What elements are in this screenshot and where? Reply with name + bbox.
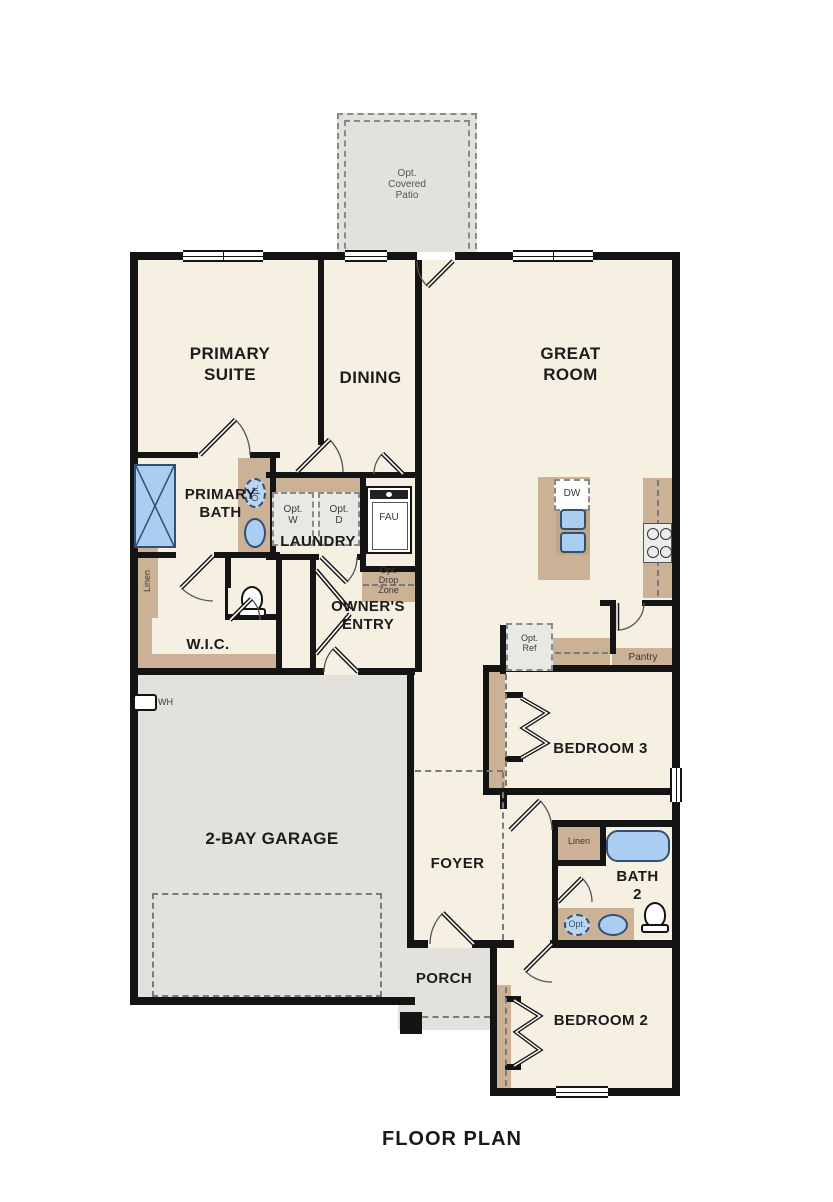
wall-bedroom3-left bbox=[483, 672, 489, 795]
foyer-label: FOYER bbox=[420, 855, 495, 873]
bedroom2-label: BEDROOM 2 bbox=[536, 1012, 666, 1030]
burner-1 bbox=[647, 528, 659, 540]
wall-wic-right bbox=[276, 558, 282, 674]
wall-suite-dining bbox=[318, 258, 324, 445]
wall-closet2-stub-top bbox=[505, 996, 521, 1002]
closet2-rod bbox=[505, 987, 507, 1086]
opening-laundry bbox=[319, 554, 357, 560]
bath2-tub bbox=[606, 830, 670, 862]
porch-step bbox=[400, 1012, 422, 1034]
burner-3 bbox=[647, 546, 659, 558]
great-room-label: GREAT ROOM bbox=[513, 344, 628, 385]
window-primary-suite bbox=[183, 250, 263, 262]
wall-closet2-stub-bottom bbox=[505, 1064, 521, 1070]
primary-suite-label: PRIMARY SUITE bbox=[150, 344, 310, 385]
wall-bedroom3-bottom bbox=[483, 788, 680, 795]
fau-label: FAU bbox=[368, 512, 410, 523]
counter-mid-centerline bbox=[555, 652, 608, 654]
wall-garage-right bbox=[407, 675, 414, 948]
dishwasher-label: DW bbox=[556, 488, 588, 499]
opt-washer-label: Opt. W bbox=[276, 504, 310, 526]
bath2-sink bbox=[598, 914, 628, 936]
window-great-room bbox=[513, 250, 593, 262]
bath2-toilet-base bbox=[641, 924, 669, 933]
laundry-counter bbox=[270, 478, 362, 492]
fau-knob bbox=[386, 492, 392, 497]
laundry-label: LAUNDRY bbox=[272, 533, 364, 551]
bath2-opt-sink-label: Opt. bbox=[564, 919, 590, 929]
plan-title: FLOOR PLAN bbox=[362, 1128, 542, 1151]
garage-label: 2-BAY GARAGE bbox=[192, 829, 352, 850]
burner-4 bbox=[660, 546, 672, 558]
bath2-linen-label: Linen bbox=[558, 836, 600, 846]
opening-front-door bbox=[428, 940, 472, 948]
primary-toilet-base bbox=[238, 608, 266, 617]
foyer-hall-break bbox=[502, 772, 504, 940]
porch-edge bbox=[412, 1016, 490, 1018]
wall-bedroom2-left bbox=[490, 940, 497, 1096]
bath2-label: BATH 2 bbox=[610, 868, 665, 905]
wall-laundry-top bbox=[266, 472, 421, 478]
wall-exterior-right bbox=[672, 252, 680, 1096]
wall-dining-greatroom bbox=[415, 258, 422, 672]
wall-garage-top bbox=[130, 668, 415, 675]
window-bedroom2 bbox=[556, 1086, 608, 1098]
opt-ref-label: Opt. Ref bbox=[508, 633, 551, 653]
closet3-rod bbox=[505, 674, 507, 786]
floor-plan-canvas: Opt. Covered Patio PRIMARY SUITE DINING … bbox=[0, 0, 833, 1202]
window-dining bbox=[345, 250, 387, 262]
opening-bath-wic bbox=[176, 552, 214, 558]
wall-pantry-left bbox=[610, 600, 616, 654]
opening-owners-garage bbox=[324, 668, 358, 675]
wall-linen2-bottom bbox=[552, 860, 606, 866]
fau-body-outline bbox=[372, 502, 408, 550]
garage-door-outline bbox=[152, 893, 382, 997]
range bbox=[643, 523, 672, 563]
opt-dryer-label: Opt. D bbox=[322, 504, 356, 526]
opening-bedroom2-door bbox=[514, 940, 550, 948]
wic-label: W.I.C. bbox=[172, 636, 244, 654]
opening-suite-bath bbox=[198, 452, 250, 458]
island-sink-upper bbox=[560, 509, 586, 530]
pantry-label: Pantry bbox=[618, 652, 668, 663]
bedroom3-label: BEDROOM 3 bbox=[538, 740, 663, 758]
wall-closet3-stub-top bbox=[505, 692, 523, 698]
drop-zone-label: Opt. Drop Zone bbox=[362, 565, 415, 595]
primary-linen-label: Linen bbox=[142, 551, 152, 611]
water-heater bbox=[133, 694, 157, 711]
opening-pantry-door bbox=[616, 600, 642, 606]
opening-patio-door bbox=[417, 252, 455, 260]
dining-label: DINING bbox=[328, 368, 413, 389]
primary-opt-sink-label: Opt. bbox=[250, 480, 260, 506]
owners-entry-label: OWNER'S ENTRY bbox=[322, 598, 414, 635]
patio-label: Opt. Covered Patio bbox=[357, 168, 457, 202]
island-sink-lower bbox=[560, 532, 586, 553]
porch-label: PORCH bbox=[406, 970, 482, 988]
bedroom3-area bbox=[483, 668, 680, 795]
wall-bath2-top bbox=[552, 820, 680, 827]
water-heater-label: WH bbox=[158, 697, 180, 707]
burner-2 bbox=[660, 528, 672, 540]
wall-garage-bottom bbox=[130, 997, 415, 1005]
opening-toilet-door bbox=[228, 588, 234, 614]
wall-owners-left bbox=[310, 560, 316, 674]
window-bedroom3 bbox=[670, 768, 682, 802]
wall-closet3-stub-bottom bbox=[505, 756, 523, 762]
wall-exterior-left bbox=[130, 252, 138, 1005]
foyer-ceiling-break bbox=[415, 770, 503, 772]
